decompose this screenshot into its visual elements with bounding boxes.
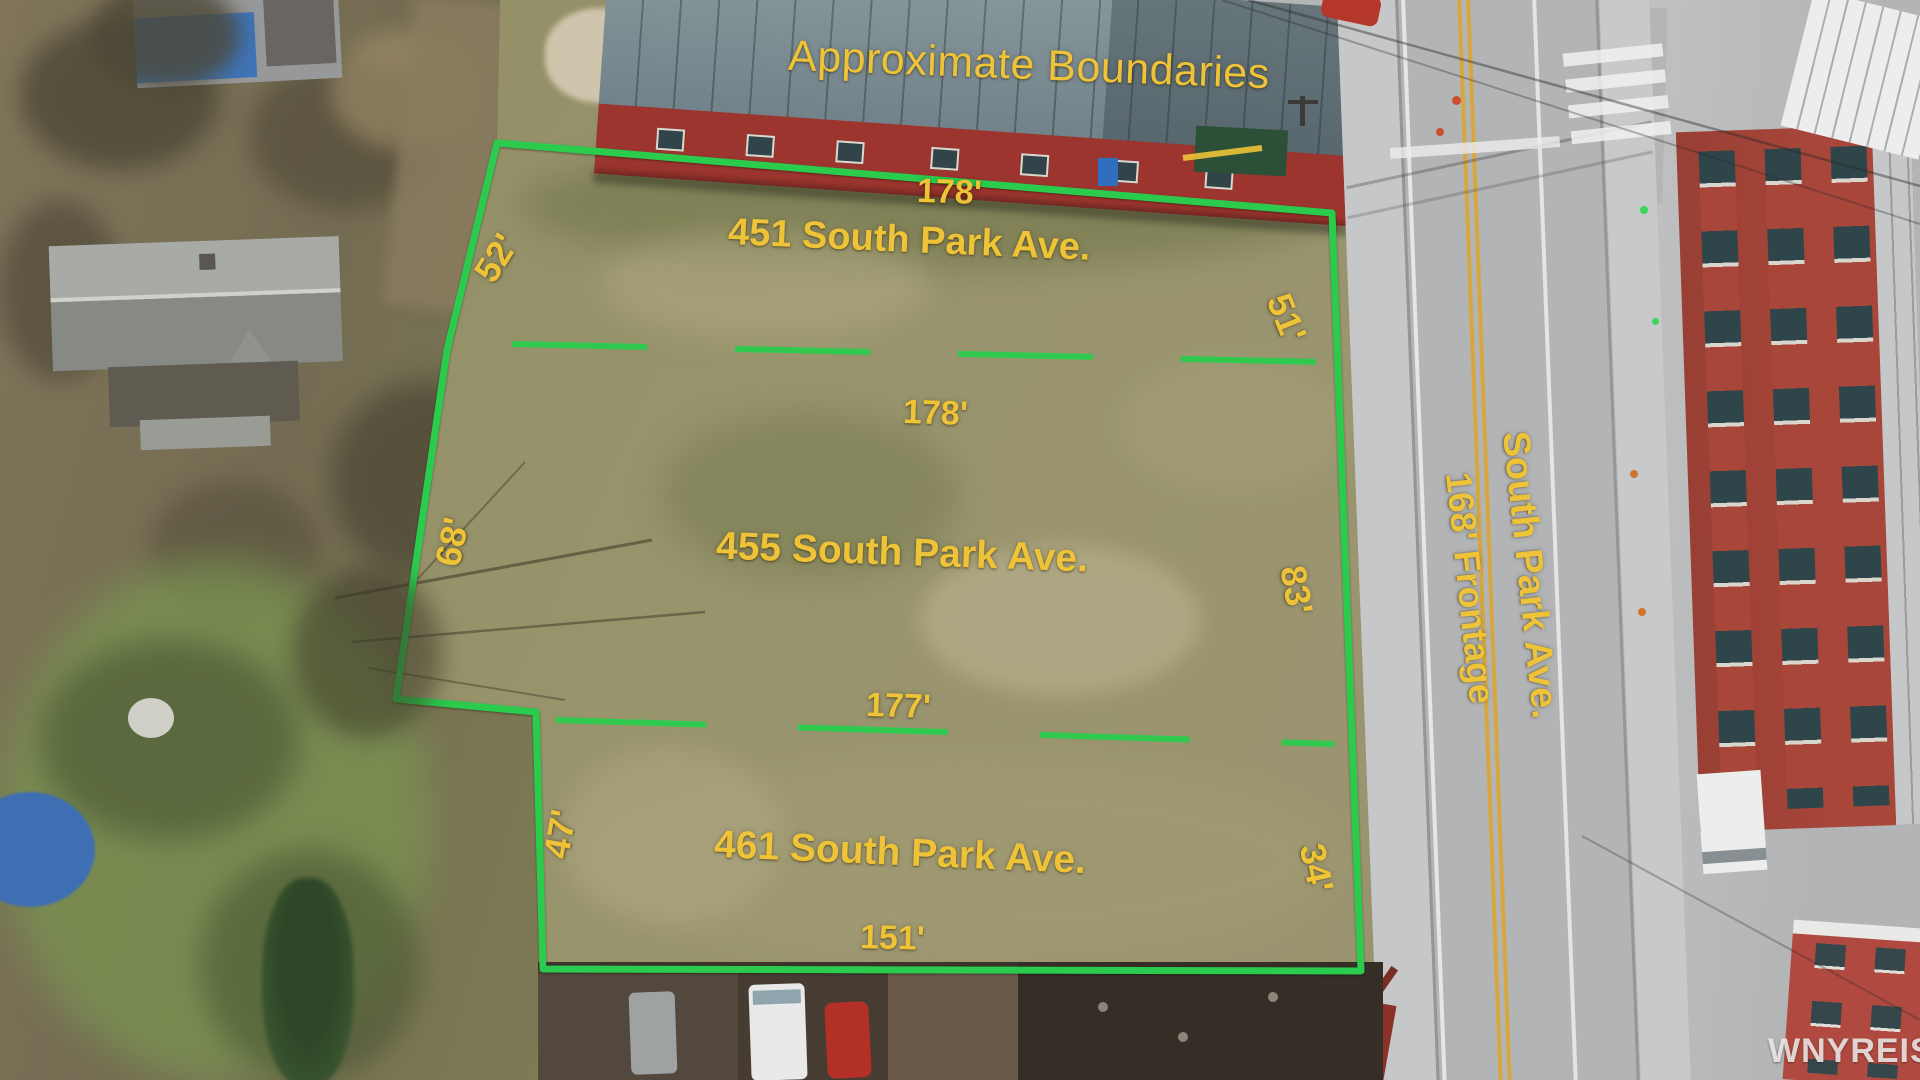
barn-window — [930, 147, 959, 171]
lot461-top-width-label: 177' — [865, 688, 931, 724]
chimney — [199, 253, 216, 270]
dumpster — [1194, 126, 1288, 177]
left-scrubland — [0, 0, 600, 1080]
porta-potty — [1098, 158, 1118, 186]
lot461-left-side-label: 47' — [538, 807, 582, 861]
crosswalk-stripe — [1568, 95, 1669, 118]
red-car — [824, 1001, 872, 1079]
van-windshield — [753, 989, 801, 1005]
orange-barrel — [1630, 470, 1638, 478]
green-paint-mark — [1640, 206, 1648, 214]
bottom-rooftops — [538, 962, 1383, 1080]
lot451-top-width-label: 178' — [916, 174, 982, 210]
lot-divider-dashed — [512, 344, 1322, 362]
roof-shadow — [263, 0, 337, 67]
field-light-patch — [1120, 360, 1350, 490]
tree-shadow — [40, 640, 300, 840]
barn-window — [1020, 153, 1049, 177]
red-marker — [1436, 128, 1444, 136]
porch-roof — [140, 416, 271, 451]
lot455-left-side-label: 68' — [430, 514, 475, 569]
window-column — [1699, 150, 1758, 811]
lot451-left-side-label: 52' — [468, 228, 524, 288]
conifer-tree — [262, 878, 354, 1080]
green-paint-mark — [1652, 318, 1659, 325]
wnyreis-watermark: WNYREIS — [1768, 1034, 1920, 1068]
barn-window — [656, 128, 685, 152]
lot461-right-side-label: 34' — [1294, 840, 1339, 895]
roof-vent — [1178, 1032, 1188, 1042]
barn-window — [835, 140, 864, 164]
orange-barrel — [1638, 608, 1646, 616]
pole-crossarm — [1288, 100, 1318, 104]
barn-window — [745, 134, 774, 158]
lot451-right-side-label: 51' — [1261, 289, 1313, 348]
fire-pit — [128, 698, 174, 738]
lot455-top-width-label: 178' — [902, 395, 968, 431]
truck-cab — [1702, 848, 1767, 864]
white-box-truck — [1697, 770, 1768, 874]
neighbor-house — [48, 221, 356, 456]
white-van — [748, 983, 807, 1080]
window-column — [1765, 148, 1824, 809]
tree-over-boundary — [292, 568, 442, 738]
lot-divider-dashed — [556, 720, 1334, 744]
roof-vent — [1268, 992, 1278, 1002]
crosswalk-stripe — [1565, 69, 1666, 92]
crosswalk — [1563, 43, 1679, 163]
roof-section — [888, 972, 1018, 1080]
gray-car — [629, 991, 678, 1075]
roof-vent — [1098, 1002, 1108, 1012]
roof-section — [1018, 962, 1383, 1080]
lot455-right-side-label: 83' — [1274, 563, 1318, 617]
crosswalk-stripe — [1571, 121, 1672, 144]
house-roof — [49, 236, 343, 371]
apartment-building — [1676, 124, 1920, 832]
red-marker — [1452, 96, 1461, 105]
aerial-photo: Approximate Boundaries 178' 451 South Pa… — [0, 0, 1920, 1080]
lot461-bottom-width-label: 151' — [860, 920, 926, 956]
